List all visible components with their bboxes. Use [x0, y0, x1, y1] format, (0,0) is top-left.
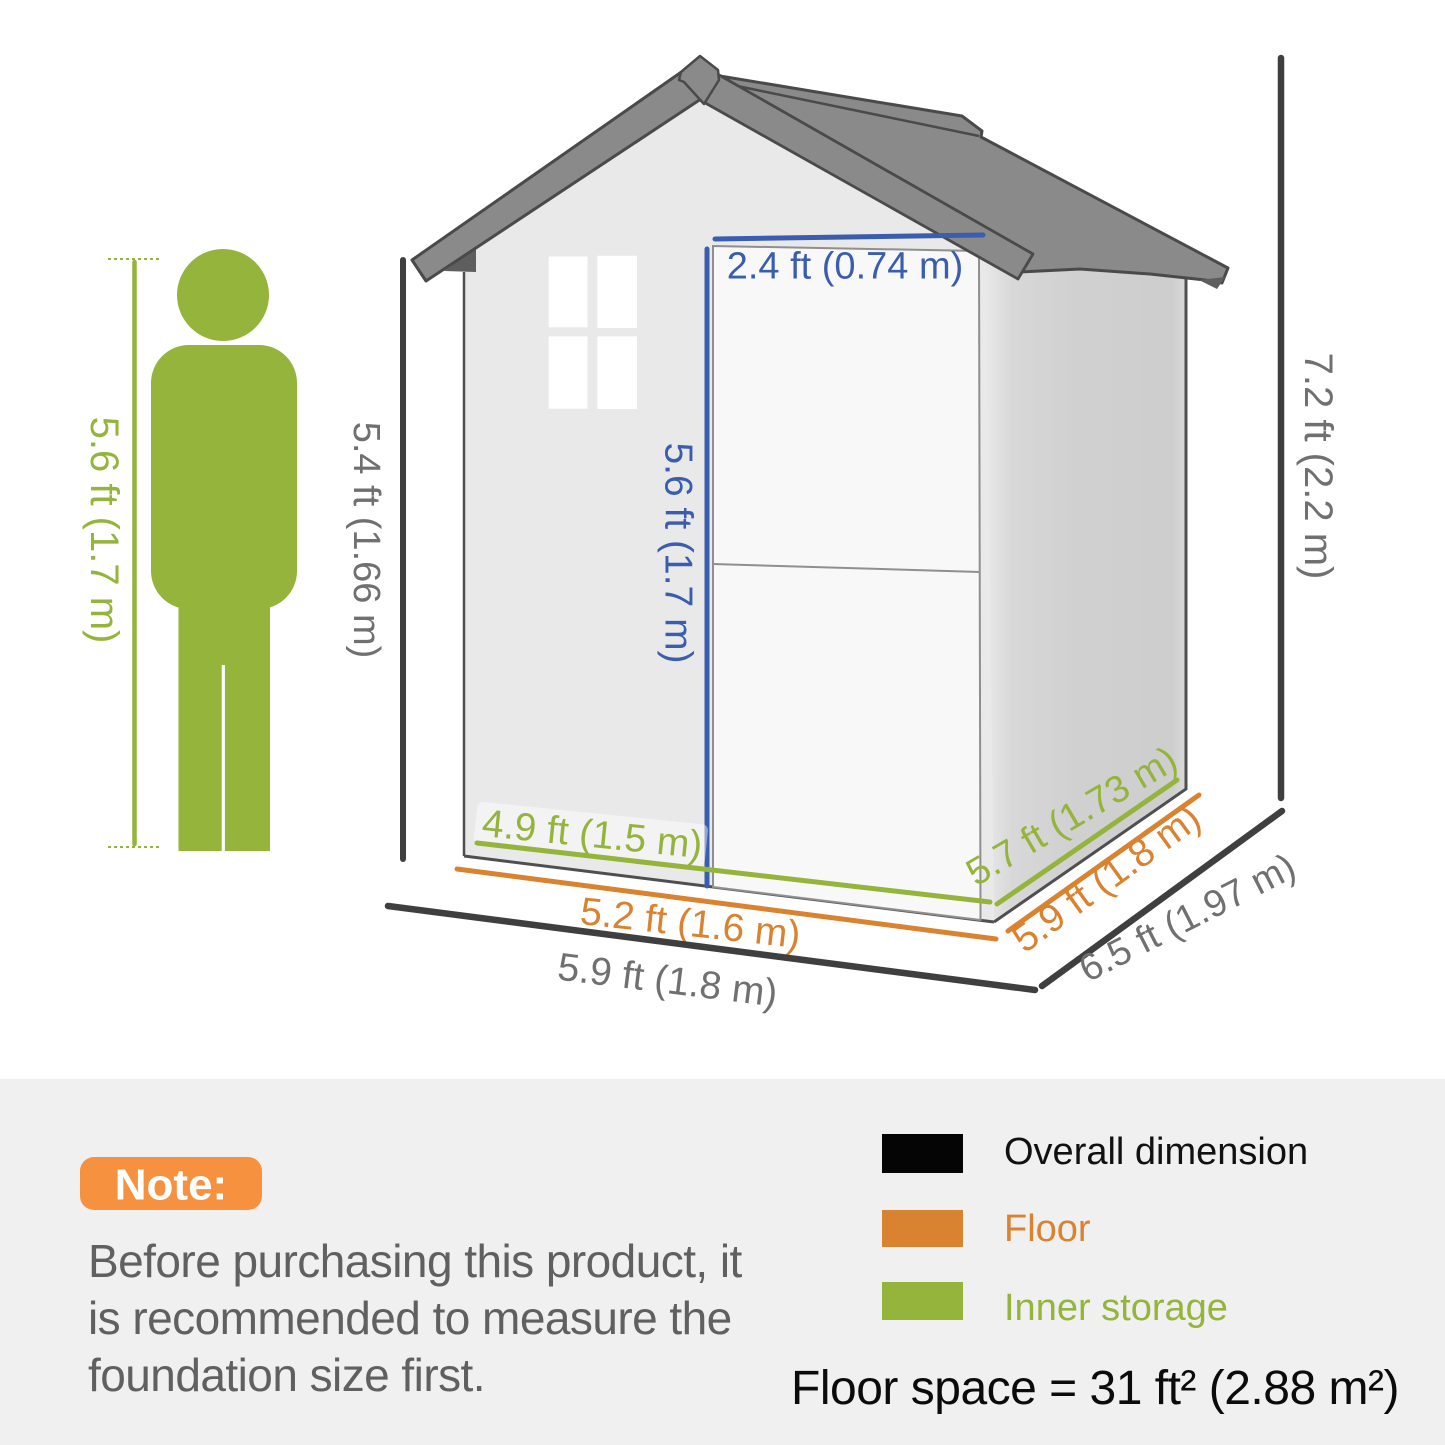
svg-text:5.4 ft (1.66 m): 5.4 ft (1.66 m) [345, 422, 387, 659]
svg-text:foundation size first.: foundation size first. [88, 1349, 485, 1401]
svg-text:7.2 ft (2.2 m): 7.2 ft (2.2 m) [1296, 353, 1340, 580]
svg-text:5.6 ft (1.7 m): 5.6 ft (1.7 m) [657, 442, 700, 663]
svg-text:Floor space = 31 ft² (2.88 m²): Floor space = 31 ft² (2.88 m²) [791, 1362, 1399, 1415]
svg-text:Before purchasing this product: Before purchasing this product, it [88, 1235, 743, 1287]
svg-text:Overall dimension: Overall dimension [1004, 1131, 1308, 1173]
svg-text:Floor: Floor [1004, 1208, 1091, 1250]
svg-text:is recommended to measure the: is recommended to measure the [88, 1292, 732, 1344]
svg-text:Inner storage: Inner storage [1004, 1287, 1228, 1329]
svg-text:Note:: Note: [115, 1161, 227, 1210]
svg-text:2.4 ft (0.74 m): 2.4 ft (0.74 m) [727, 246, 964, 288]
svg-text:5.6 ft (1.7 m): 5.6 ft (1.7 m) [82, 417, 126, 644]
